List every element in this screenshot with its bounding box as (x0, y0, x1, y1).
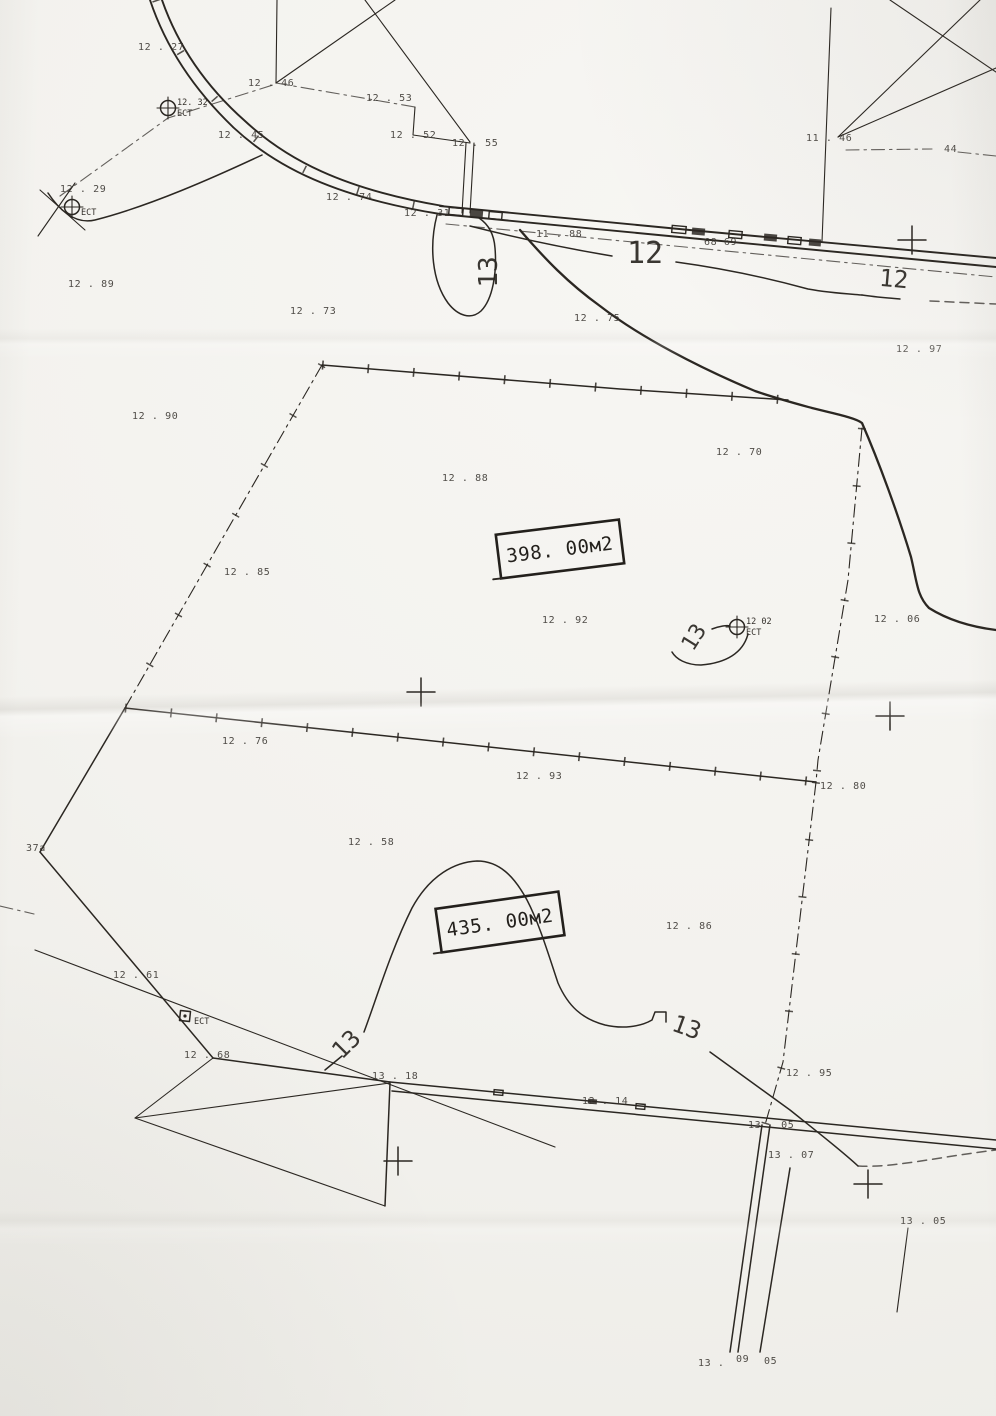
contour-13-bell (364, 861, 666, 1032)
spot-height-label: 12 . 06 (874, 614, 920, 625)
spot-height-label: 09 (736, 1354, 749, 1365)
spot-height-label: 12 . 61 (113, 970, 159, 981)
spot-height-label: 13 . 05 (748, 1120, 794, 1131)
contour-label: 13 (677, 620, 712, 656)
grid-cross-icon (384, 1147, 412, 1175)
spot-height-label: 12 . 97 (896, 344, 942, 355)
culvert-hatch (764, 233, 778, 241)
marker-dot (183, 1014, 186, 1017)
spot-height-label: 12 . 58 (348, 837, 394, 848)
spot-height-label: 12 . 86 (666, 921, 712, 932)
parcel-398-right-edge (816, 428, 862, 782)
spot-height-label: 12 . 52 (390, 130, 436, 141)
line-top-vertical (276, 0, 277, 83)
marker-est-label: ЕСТ (746, 628, 761, 638)
spot-height-label: 12 . 31 (404, 208, 450, 219)
contour-12-east-dashed (930, 301, 996, 304)
survey-marker: 12. 32ЕСТ (157, 97, 208, 119)
line-top-dbl-1 (462, 143, 466, 213)
spot-height-label: 12 . 29 (60, 184, 106, 195)
contour-label: 12 (878, 264, 909, 294)
misc-lines (0, 0, 996, 1352)
contour-label: 13 (474, 256, 504, 287)
road-bottom-approach (213, 1058, 390, 1082)
spot-height-label: 12 . 85 (224, 567, 270, 578)
parcel-435-left-edge (40, 708, 125, 852)
culvert-hatch (470, 209, 484, 217)
parcel-398-right-ticks (816, 428, 862, 782)
spot-height-label: 13 . 07 (768, 1150, 814, 1161)
contour-12-mid (676, 262, 862, 295)
spot-height-label: 12 . 90 (132, 411, 178, 422)
scanned-map-paper: 398. 00м2 435. 00м2 121213131313 12 . 27… (0, 0, 996, 1416)
line-tr-diag-a (838, 0, 980, 137)
area-label-398: 398. 00м2 (505, 533, 614, 568)
spot-height-label: 12 . 27 (138, 42, 184, 53)
grid-cross-icon (876, 702, 904, 730)
culvert-hatch (449, 207, 464, 215)
line-tr-vertical (822, 8, 831, 242)
road-bottom-stub-vertical (385, 1083, 390, 1206)
marker-est-label: ЕСТ (81, 208, 96, 218)
spot-height-label: 12 . 93 (516, 771, 562, 782)
spot-height-label: 12 . 92 (542, 615, 588, 626)
contour-label-layer: 121213131313 (326, 236, 909, 1064)
road-hatches (449, 207, 822, 1109)
area-box-398: 398. 00м2 (488, 520, 624, 580)
line-br-single (760, 1168, 790, 1352)
contour-12-east (862, 295, 900, 299)
grid-cross-icon (854, 1170, 882, 1198)
spot-height-label: 12 . 74 (326, 192, 372, 203)
survey-marker: ЕСТ (61, 196, 96, 218)
parcel-435-left-lower (40, 852, 213, 1058)
contour-label: 13 (668, 1009, 705, 1045)
stream-line (520, 230, 996, 630)
parcel-398-top-edge (322, 365, 788, 400)
spot-height-label: 68 69 (704, 237, 737, 248)
spot-height-label: 12 . 80 (820, 781, 866, 792)
area-box-435-underline (434, 952, 442, 953)
spot-height-label: 12 . 88 (442, 473, 488, 484)
spot-height-label: 12 . 53 (366, 93, 412, 104)
spot-height-label: 11 . 46 (806, 133, 852, 144)
area-box-435: 435. 00м2 (428, 892, 565, 954)
spot-height-label: 12 . 95 (786, 1068, 832, 1079)
grid-cross-icon (407, 678, 435, 706)
contour-label: 13 (326, 1024, 366, 1064)
contour-lines (325, 215, 996, 1166)
spot-height-label: 12 . 73 (290, 306, 336, 317)
line-top-dbl-2 (470, 143, 474, 213)
area-label-435: 435. 00м2 (445, 905, 554, 942)
area-box-398-underline (493, 578, 501, 579)
spot-height-label: 13 . 18 (372, 1071, 418, 1082)
contour-13-tail-dashed (858, 1150, 996, 1166)
survey-map-canvas: 398. 00м2 435. 00м2 121213131313 12 . 27… (0, 0, 996, 1416)
spot-height-label: 44 (944, 144, 957, 155)
spot-height-label: 13 . 05 (900, 1216, 946, 1227)
culvert-hatch (692, 227, 706, 235)
parcel-435-boundary (40, 708, 816, 1125)
spot-height-label: 12 . 75 (574, 313, 620, 324)
culvert-hatch (809, 238, 822, 246)
line-top-diag-b (365, 0, 470, 142)
line-ll-diag-c (135, 1118, 385, 1206)
line-tr-corner (890, 0, 996, 72)
spot-height-label: 05 (764, 1356, 777, 1367)
road-bottom-edge-upper (390, 1082, 996, 1140)
line-ll-edge-dash (0, 906, 34, 914)
line-tr-dash-2 (958, 152, 996, 156)
contour-label: 12 (627, 236, 663, 271)
spot-height-label: 12 . 55 (452, 138, 498, 149)
spot-height-label: 12 . 46 (248, 78, 294, 89)
spot-height-label: 12 . 68 (184, 1050, 230, 1061)
marker-elevation-label: 12. 32 (177, 98, 208, 108)
spot-height-label: 12 . 14 (582, 1096, 628, 1107)
spot-height-label: 12 . 76 (222, 736, 268, 747)
culvert-hatch (489, 211, 503, 219)
spot-height-label: 11 . 88 (536, 229, 582, 240)
marker-elevation-label: 12 02 (746, 617, 772, 627)
line-br-dbl-1 (730, 1125, 762, 1352)
line-tr-diag-b (838, 68, 996, 137)
marker-est-label: ЕСТ (194, 1017, 209, 1027)
spot-height-label: 12 . 89 (68, 279, 114, 290)
spot-height-label: 12 . 45 (218, 130, 264, 141)
line-tr-dash-1 (846, 149, 932, 150)
line-br-short (897, 1228, 908, 1312)
grid-cross-layer (384, 226, 926, 1198)
spot-height-label: 12 . 70 (716, 447, 762, 458)
survey-marker: 12 02ЕСТ (726, 616, 772, 638)
spot-height-label: 13 . (698, 1358, 724, 1369)
line-top-diag-a (276, 0, 395, 83)
marker-est-label: ЕСТ (177, 109, 192, 119)
spot-height-label: 37a (26, 843, 46, 854)
